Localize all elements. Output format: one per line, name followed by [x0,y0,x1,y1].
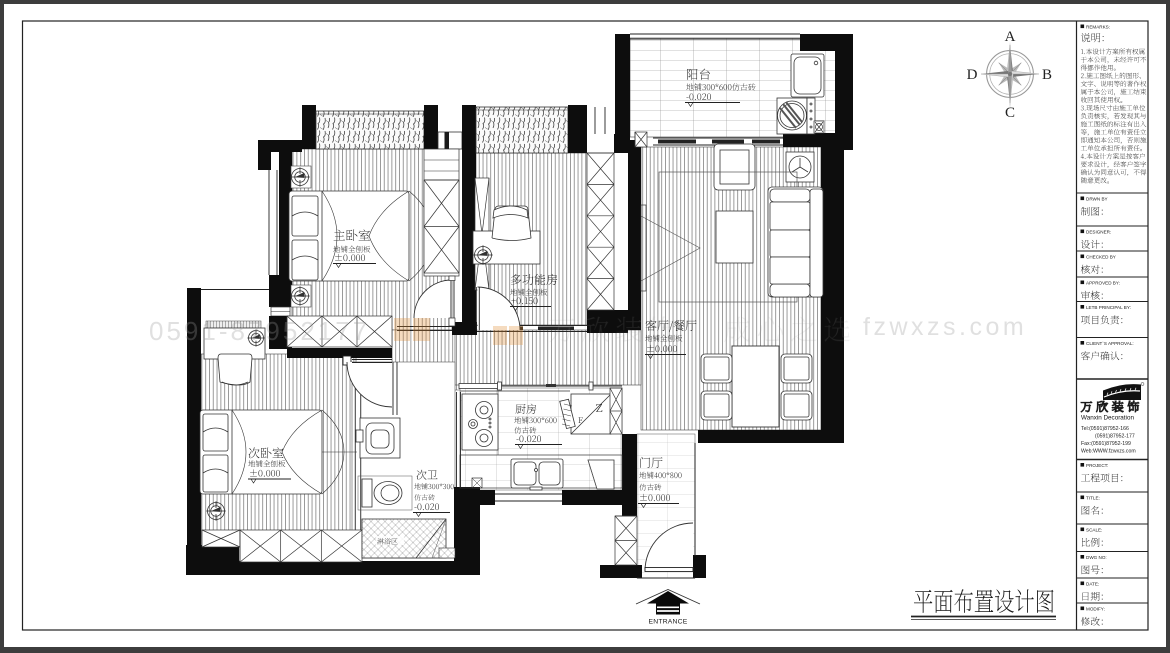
svg-text:CLIENT`S APPROVAL:: CLIENT`S APPROVAL: [1086,341,1134,346]
svg-text:Fax:(0591)87952-199: Fax:(0591)87952-199 [1081,441,1131,447]
svg-text:B: B [1042,67,1052,83]
svg-text:A: A [1005,29,1016,45]
svg-text:DWG NO:: DWG NO: [1086,555,1107,560]
svg-text:DATE:: DATE: [1086,582,1099,587]
svg-text:CHECKED BY: CHECKED BY [1086,255,1116,260]
svg-text:SCALE:: SCALE: [1086,528,1102,533]
svg-text:D: D [967,67,978,83]
svg-text:MODIFY:: MODIFY: [1086,607,1105,612]
svg-text:LETB PRINCIPAL BY:: LETB PRINCIPAL BY: [1086,305,1131,310]
svg-text:TITLE:: TITLE: [1086,496,1100,501]
svg-text:0591-87952177: 0591-87952177 [149,316,370,346]
svg-text:DRWN BY: DRWN BY [1086,197,1108,202]
svg-text:Tel:(0591)87952-166: Tel:(0591)87952-166 [1081,426,1129,432]
svg-text:Wanxin Decoration: Wanxin Decoration [1081,415,1134,422]
svg-text:PROJECT:: PROJECT: [1086,463,1108,468]
svg-text:fzwxzs.com: fzwxzs.com [863,313,1027,341]
svg-text:(0591)87952-177: (0591)87952-177 [1095,434,1135,440]
svg-text:C: C [1005,105,1015,121]
svg-text:REMARKS:: REMARKS: [1086,25,1110,30]
svg-text:DESIGNER:: DESIGNER: [1086,230,1111,235]
svg-text:APPROVED BY:: APPROVED BY: [1086,281,1120,286]
svg-text:Web:WWW.fzwxzs.com: Web:WWW.fzwxzs.com [1081,449,1136,455]
svg-text:ENTRANCE: ENTRANCE [649,619,688,626]
